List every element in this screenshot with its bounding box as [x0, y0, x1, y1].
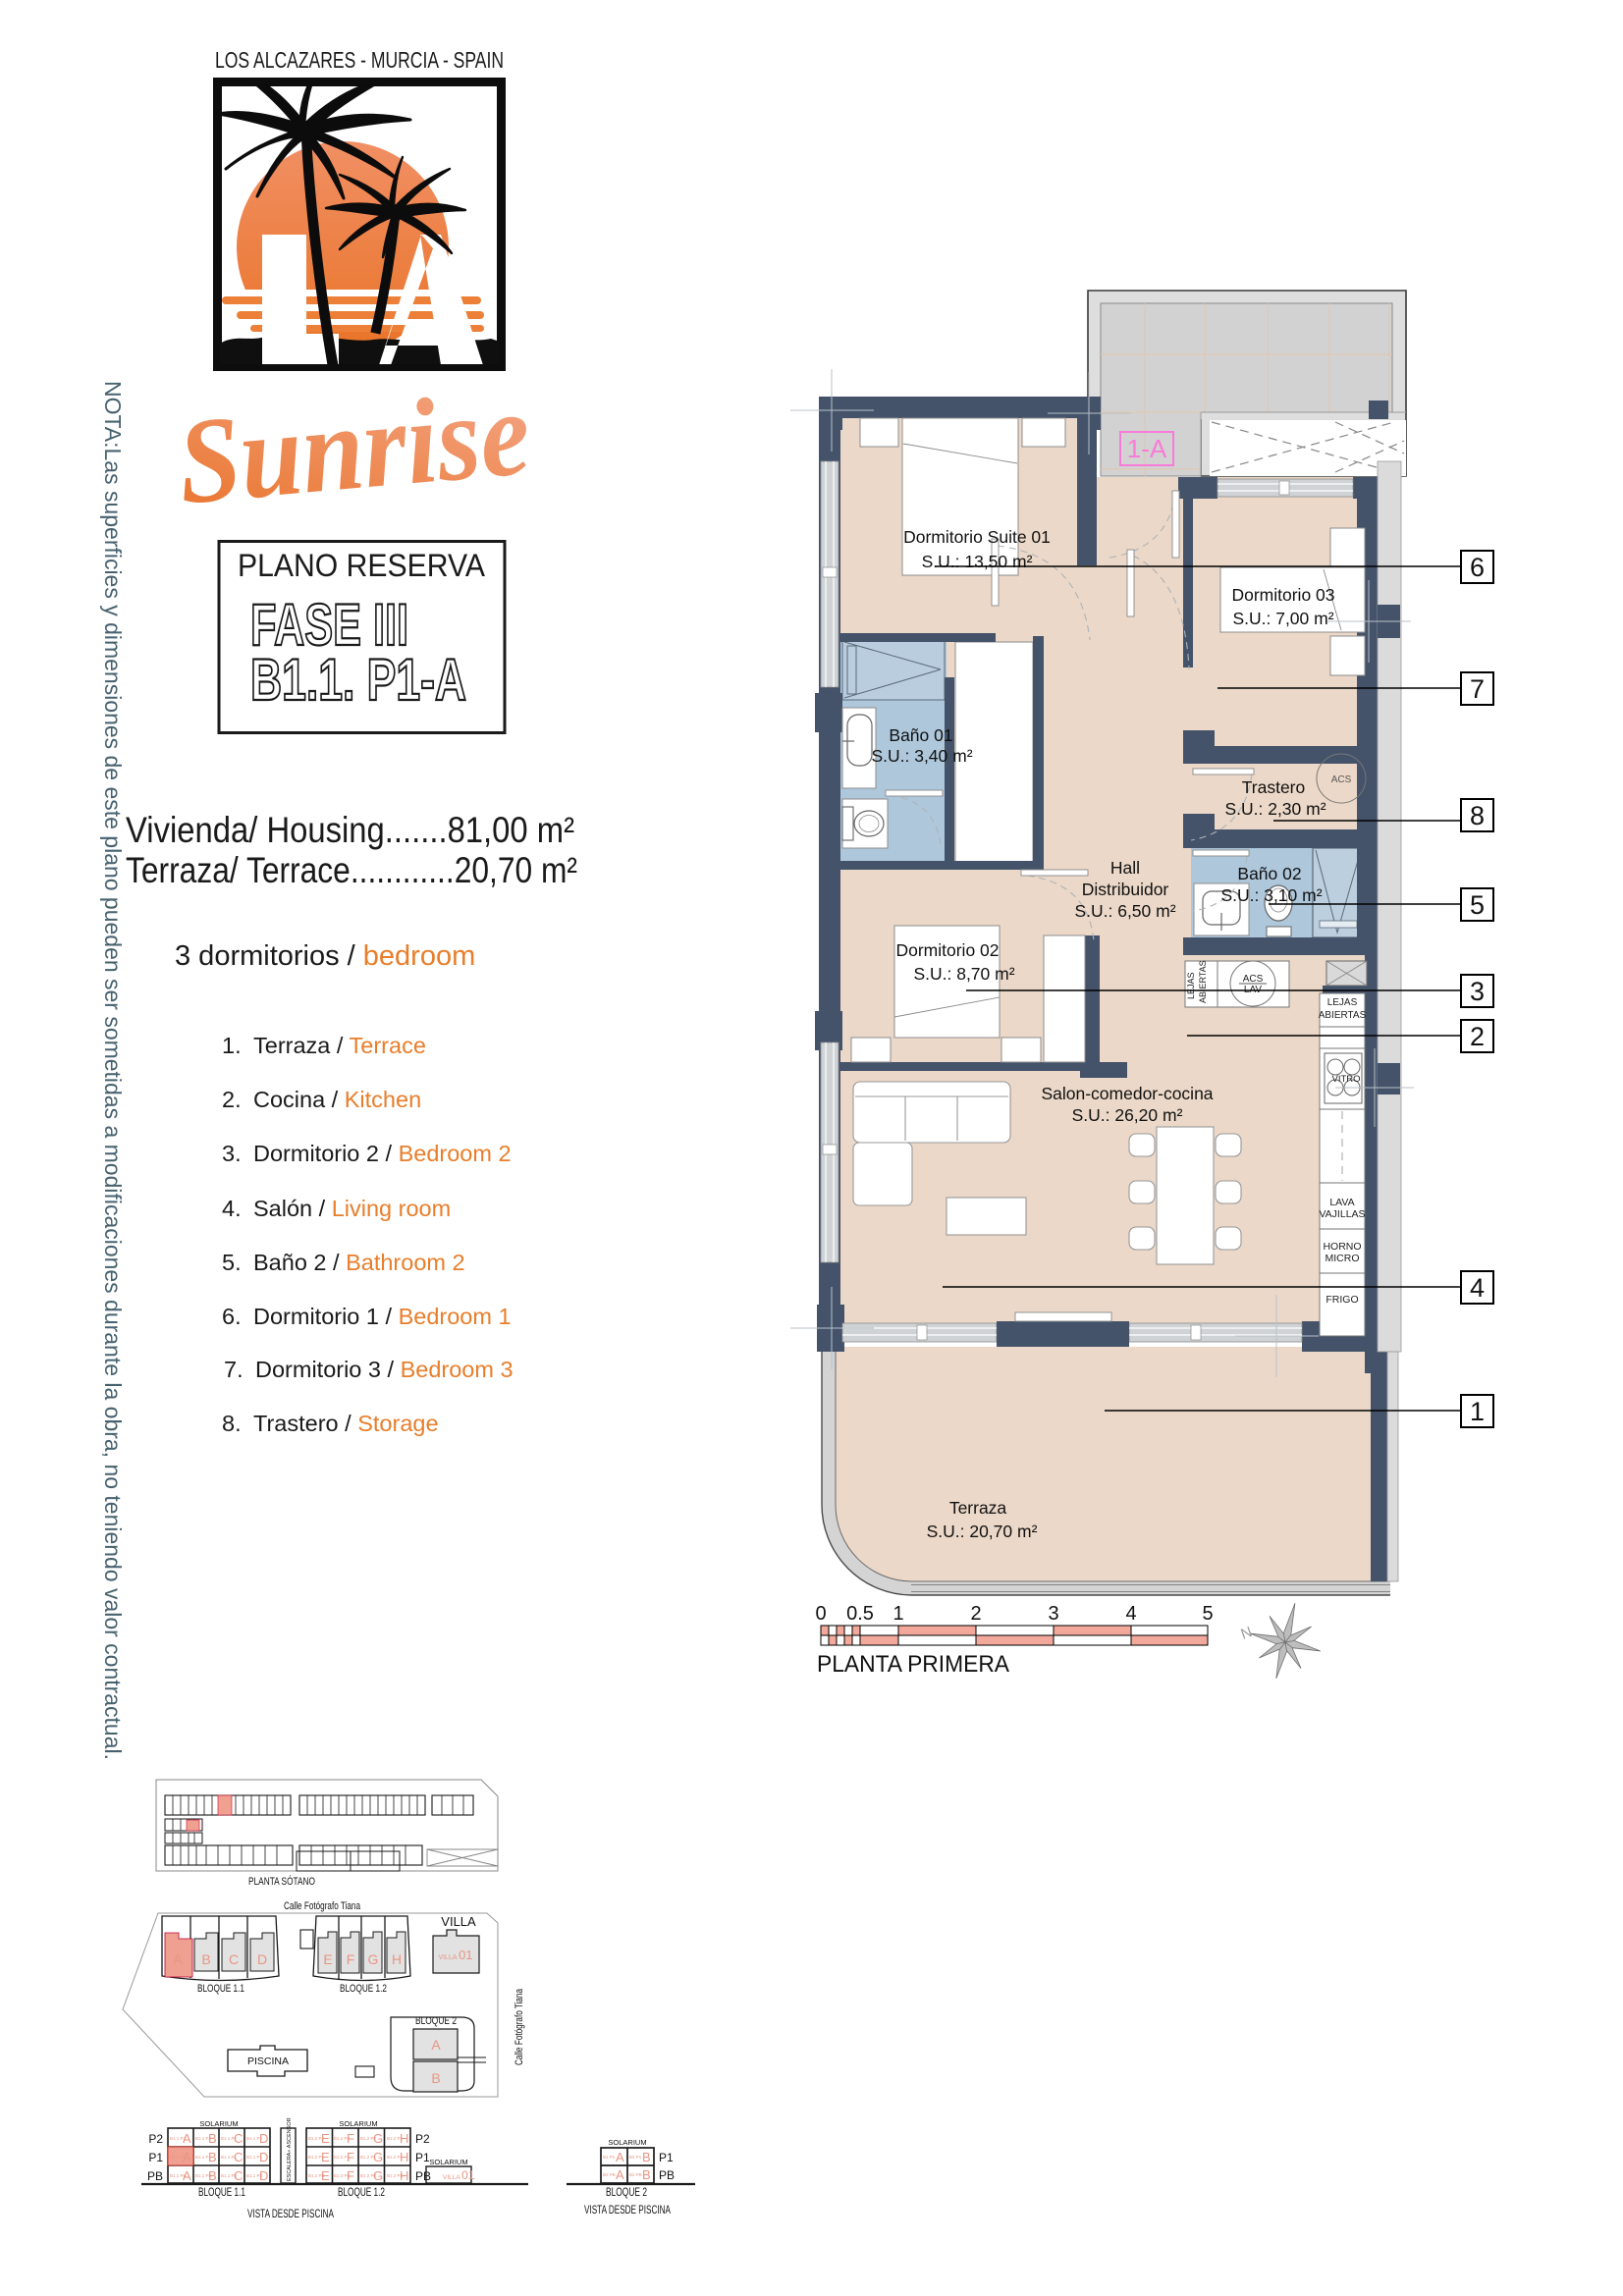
- svg-text:Salon-comedor-cocina: Salon-comedor-cocina: [1041, 1084, 1213, 1103]
- svg-text:H: H: [392, 1951, 402, 1967]
- svg-text:PB: PB: [415, 2169, 431, 2183]
- svg-text:B2 P1: B2 P1: [603, 2155, 616, 2160]
- svg-text:S.U.: 20,70 m²: S.U.: 20,70 m²: [927, 1522, 1038, 1541]
- svg-text:LOS ALCAZARES - MURCIA - SPAIN: LOS ALCAZARES - MURCIA - SPAIN: [215, 47, 504, 73]
- svg-text:S.U.: 8,70 m²: S.U.: 8,70 m²: [913, 964, 1014, 984]
- svg-text:8: 8: [1470, 801, 1485, 830]
- svg-text:B1.1 P2: B1.1 P2: [195, 2136, 212, 2141]
- svg-text:PISCINA: PISCINA: [247, 2056, 289, 2067]
- svg-text:G: G: [368, 1951, 379, 1967]
- svg-text:B1.2 PB: B1.2 PB: [360, 2173, 377, 2178]
- svg-text:1-A: 1-A: [1127, 434, 1167, 463]
- svg-text:Calle Fotógrafo Tiana: Calle Fotógrafo Tiana: [284, 1900, 361, 1912]
- svg-text:B1.1 P2: B1.1 P2: [246, 2136, 263, 2141]
- svg-text:Hall: Hall: [1110, 858, 1140, 878]
- svg-text:2.: 2.: [222, 1087, 242, 1112]
- svg-text:BLOQUE 1.1: BLOQUE 1.1: [197, 1983, 244, 1995]
- svg-text:B2 PB: B2 PB: [629, 2172, 642, 2177]
- svg-text:B1.1 PB: B1.1 PB: [246, 2173, 263, 2178]
- svg-text:Dormitorio 3 / Bedroom 3: Dormitorio 3 / Bedroom 3: [255, 1357, 514, 1382]
- svg-text:5: 5: [1470, 890, 1485, 920]
- svg-text:B1.1 P2: B1.1 P2: [170, 2136, 187, 2141]
- svg-text:ABIERTAS: ABIERTAS: [1198, 960, 1208, 1003]
- svg-text:B1.2 PB: B1.2 PB: [308, 2173, 325, 2178]
- svg-text:4: 4: [1470, 1273, 1485, 1303]
- svg-text:SOLARIUM: SOLARIUM: [608, 2138, 646, 2147]
- svg-text:S.U.: 3,40 m²: S.U.: 3,40 m²: [871, 746, 972, 766]
- svg-text:B1.1 PB: B1.1 PB: [195, 2173, 212, 2178]
- svg-text:4: 4: [1125, 1603, 1136, 1625]
- svg-text:B1.1 P1: B1.1 P1: [221, 2155, 238, 2160]
- svg-text:B: B: [642, 2167, 651, 2182]
- svg-text:B: B: [201, 1951, 210, 1967]
- svg-text:5.: 5.: [222, 1250, 242, 1275]
- svg-text:3: 3: [1048, 1603, 1058, 1625]
- svg-text:0: 0: [815, 1603, 826, 1625]
- svg-text:P1: P1: [659, 2151, 674, 2164]
- svg-text:B: B: [431, 2070, 440, 2086]
- svg-text:S.U.: 3,10 m²: S.U.: 3,10 m²: [1220, 885, 1322, 905]
- svg-text:1: 1: [1470, 1397, 1485, 1426]
- svg-text:B1.2 P1: B1.2 P1: [334, 2155, 351, 2160]
- svg-text:HORNO: HORNO: [1323, 1241, 1361, 1253]
- svg-text:1: 1: [893, 1603, 903, 1625]
- svg-text:D: D: [257, 1951, 267, 1967]
- svg-text:F: F: [347, 1951, 355, 1967]
- svg-text:B2 PB: B2 PB: [603, 2172, 616, 2177]
- svg-text:Cocina / Kitchen: Cocina / Kitchen: [253, 1087, 421, 1112]
- svg-text:B1.2 PB: B1.2 PB: [387, 2173, 404, 2178]
- svg-text:B: B: [642, 2150, 651, 2164]
- svg-text:NOTA:Las superficies y dimensi: NOTA:Las superficies y dimensiones de es…: [100, 381, 126, 1760]
- svg-text:0.5: 0.5: [846, 1603, 874, 1625]
- svg-text:B1.2 P1: B1.2 P1: [308, 2155, 325, 2160]
- svg-text:B1.1 P1: B1.1 P1: [246, 2155, 263, 2160]
- svg-text:B1.2 P1: B1.2 P1: [387, 2155, 404, 2160]
- svg-text:B1.2 P2: B1.2 P2: [334, 2136, 351, 2141]
- svg-text:S.U.: 6,50 m²: S.U.: 6,50 m²: [1074, 901, 1175, 921]
- svg-text:A: A: [616, 2167, 624, 2182]
- svg-text:3 dormitorios / bedroom: 3 dormitorios / bedroom: [175, 940, 475, 972]
- svg-text:Trastero / Storage: Trastero / Storage: [253, 1411, 439, 1436]
- svg-text:VISTA DESDE PISCINA: VISTA DESDE PISCINA: [247, 2207, 334, 2220]
- svg-text:P2: P2: [415, 2132, 430, 2146]
- svg-text:VISTA DESDE PISCINA: VISTA DESDE PISCINA: [584, 2203, 671, 2216]
- svg-text:B1.1 PB: B1.1 PB: [170, 2173, 187, 2178]
- svg-text:B1.2 PB: B1.2 PB: [334, 2173, 351, 2178]
- svg-text:Dormitorio 1 / Bedroom 1: Dormitorio 1 / Bedroom 1: [253, 1304, 512, 1329]
- svg-text:P1: P1: [415, 2151, 430, 2164]
- svg-text:SOLARIUM: SOLARIUM: [199, 2119, 238, 2128]
- svg-text:6.: 6.: [222, 1304, 242, 1329]
- svg-text:PB: PB: [147, 2169, 163, 2183]
- svg-text:Baño 02: Baño 02: [1237, 864, 1301, 883]
- svg-text:LAVA: LAVA: [1329, 1197, 1354, 1208]
- svg-text:Dormitorio Suite 01: Dormitorio Suite 01: [903, 527, 1051, 547]
- svg-text:B1.2 P2: B1.2 P2: [387, 2136, 404, 2141]
- svg-text:LEJAS: LEJAS: [1327, 997, 1358, 1008]
- svg-text:7: 7: [1470, 674, 1485, 704]
- svg-text:ESCALERA+ ASCENSOR: ESCALERA+ ASCENSOR: [287, 2117, 293, 2181]
- svg-text:4.: 4.: [222, 1196, 242, 1221]
- svg-text:LEJAS: LEJAS: [1186, 972, 1196, 999]
- svg-text:Salón / Living room: Salón / Living room: [253, 1196, 451, 1221]
- svg-text:VAJILLAS: VAJILLAS: [1319, 1208, 1365, 1220]
- svg-text:A: A: [616, 2150, 624, 2164]
- svg-text:E: E: [323, 1951, 332, 1967]
- svg-text:Dormitorio 02: Dormitorio 02: [895, 940, 999, 960]
- svg-text:BLOQUE 1.2: BLOQUE 1.2: [338, 2187, 385, 2199]
- svg-text:B1.1 P1: B1.1 P1: [170, 2155, 187, 2160]
- svg-text:8.: 8.: [222, 1411, 242, 1436]
- svg-text:B1.2 P2: B1.2 P2: [360, 2136, 377, 2141]
- svg-text:Terraza / Terrace: Terraza / Terrace: [253, 1033, 426, 1058]
- svg-text:B1.1 P1: B1.1 P1: [195, 2155, 212, 2160]
- svg-text:VITRO: VITRO: [1331, 1074, 1360, 1085]
- svg-text:5: 5: [1202, 1603, 1213, 1625]
- svg-text:Dormitorio 2 / Bedroom 2: Dormitorio 2 / Bedroom 2: [253, 1141, 512, 1166]
- svg-text:Calle Fotógrafo Tiana: Calle Fotógrafo Tiana: [514, 1988, 525, 2065]
- svg-text:BLOQUE 1.1: BLOQUE 1.1: [198, 2187, 245, 2199]
- svg-text:BLOQUE 1.2: BLOQUE 1.2: [340, 1983, 387, 1995]
- svg-text:Dormitorio 03: Dormitorio 03: [1231, 585, 1334, 605]
- svg-text:ACS: ACS: [1243, 974, 1264, 985]
- svg-text:PB: PB: [659, 2168, 675, 2182]
- svg-text:S.U.: 26,20 m²: S.U.: 26,20 m²: [1072, 1105, 1183, 1125]
- svg-text:VILLA: VILLA: [441, 1914, 476, 1929]
- svg-text:3: 3: [1470, 977, 1485, 1006]
- svg-text:SOLARIUM: SOLARIUM: [429, 2158, 467, 2166]
- svg-text:B1.1 P2: B1.1 P2: [221, 2136, 238, 2141]
- svg-text:B2 P1: B2 P1: [629, 2155, 642, 2160]
- svg-text:PLANO RESERVA: PLANO RESERVA: [238, 548, 486, 583]
- svg-text:2: 2: [970, 1603, 981, 1625]
- svg-text:Baño 01: Baño 01: [889, 725, 952, 745]
- svg-text:Vivienda/ Housing.......81,00: Vivienda/ Housing.......81,00 m²: [126, 810, 574, 850]
- svg-text:ACS: ACS: [1331, 774, 1352, 785]
- svg-text:Terraza/ Terrace............20: Terraza/ Terrace............20,70 m²: [126, 850, 577, 890]
- svg-text:PLANTA SÓTANO: PLANTA SÓTANO: [248, 1875, 315, 1888]
- svg-text:7.: 7.: [224, 1357, 243, 1382]
- svg-text:B1.1. P1-A: B1.1. P1-A: [250, 647, 466, 713]
- svg-text:Trastero: Trastero: [1242, 777, 1306, 797]
- svg-text:MICRO: MICRO: [1325, 1253, 1360, 1264]
- svg-text:6: 6: [1470, 553, 1485, 582]
- svg-text:Distribuidor: Distribuidor: [1082, 880, 1169, 899]
- svg-text:S.U.: 7,00 m²: S.U.: 7,00 m²: [1232, 609, 1333, 628]
- svg-text:S.U.: 2,30 m²: S.U.: 2,30 m²: [1224, 799, 1325, 819]
- svg-text:S.U.: 13,50 m²: S.U.: 13,50 m²: [922, 552, 1033, 571]
- svg-text:Terraza: Terraza: [949, 1498, 1007, 1518]
- svg-text:P1: P1: [148, 2151, 163, 2164]
- svg-text:2: 2: [1470, 1022, 1485, 1051]
- svg-text:B1.2 P1: B1.2 P1: [360, 2155, 377, 2160]
- svg-text:B1.2 P2: B1.2 P2: [308, 2136, 325, 2141]
- svg-text:FRIGO: FRIGO: [1325, 1294, 1358, 1306]
- svg-text:P2: P2: [148, 2132, 163, 2146]
- svg-text:A: A: [173, 1951, 183, 1967]
- svg-text:ABIERTAS: ABIERTAS: [1319, 1010, 1367, 1021]
- svg-text:1.: 1.: [222, 1033, 242, 1058]
- svg-text:SOLARIUM: SOLARIUM: [339, 2119, 377, 2128]
- svg-text:3.: 3.: [222, 1141, 242, 1166]
- svg-text:A: A: [431, 2037, 441, 2053]
- svg-text:Baño 2 / Bathroom 2: Baño 2 / Bathroom 2: [253, 1250, 465, 1275]
- svg-text:B1.1 PB: B1.1 PB: [221, 2173, 238, 2178]
- svg-text:C: C: [229, 1951, 239, 1967]
- svg-text:BLOQUE 2: BLOQUE 2: [606, 2187, 647, 2199]
- svg-text:PLANTA PRIMERA: PLANTA PRIMERA: [817, 1651, 1009, 1678]
